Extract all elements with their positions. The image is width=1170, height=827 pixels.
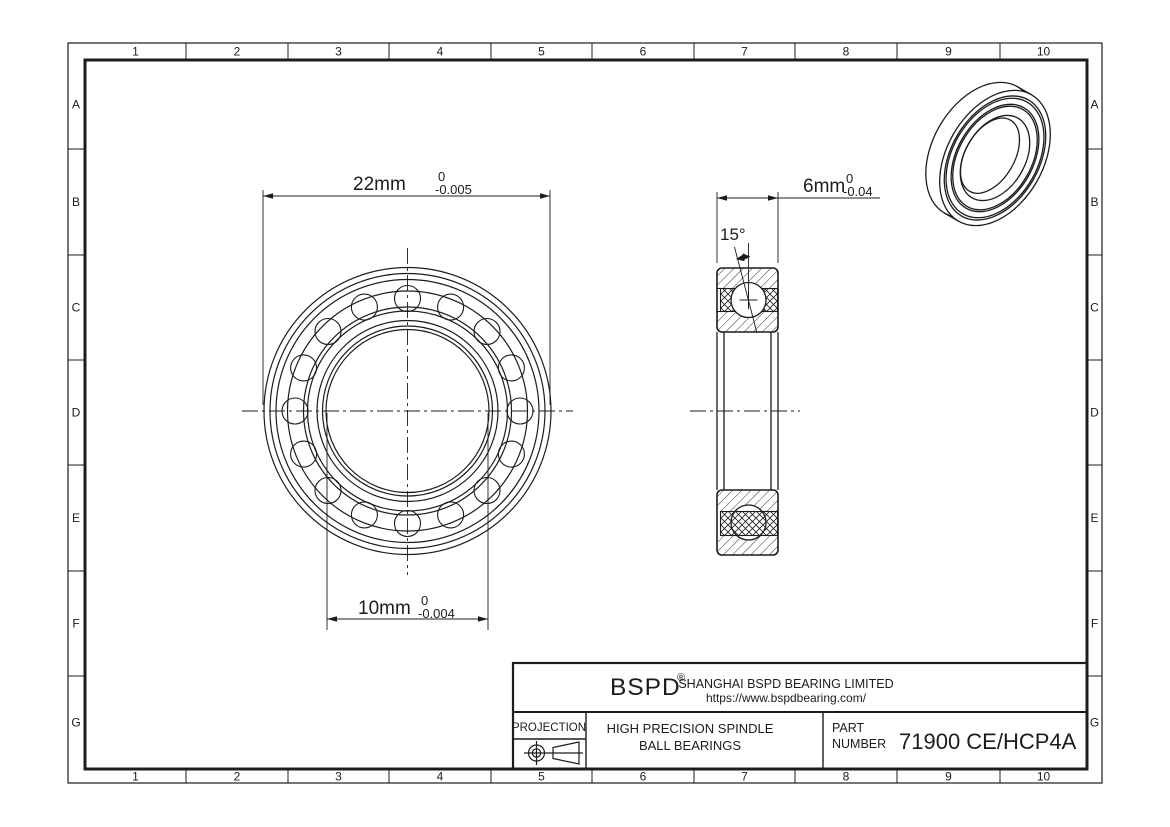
bearing-isometric-view bbox=[903, 63, 1073, 245]
engineering-drawing-sheet: 1122334455667788991010AABBCCDDEEFFGG 22m… bbox=[0, 0, 1170, 827]
grid-column-label-top: 6 bbox=[640, 45, 647, 59]
arrowhead-left bbox=[263, 193, 273, 199]
arrowhead-left bbox=[717, 195, 727, 201]
section-bottom-block bbox=[717, 490, 778, 556]
grid-column-label-bottom: 8 bbox=[843, 770, 850, 784]
grid-column-label-top: 9 bbox=[945, 45, 952, 59]
grid-column-label-bottom: 7 bbox=[741, 770, 748, 784]
ball bbox=[315, 478, 341, 504]
arrowhead-right bbox=[768, 195, 778, 201]
width-tol-lower: -0.04 bbox=[843, 184, 873, 199]
bearing-section-view bbox=[690, 192, 880, 556]
iso-front-face bbox=[917, 71, 1073, 245]
dimension-text-outer-diameter: 22mm 0 -0.005 bbox=[353, 169, 472, 197]
arrowhead-right bbox=[540, 193, 550, 199]
grid-row-label-right: G bbox=[1090, 716, 1099, 730]
od-value: 22mm bbox=[353, 174, 406, 195]
grid-column-label-top: 4 bbox=[437, 45, 444, 59]
grid-row-label-left: A bbox=[72, 98, 80, 112]
grid-column-label-bottom: 10 bbox=[1037, 770, 1051, 784]
company-website: https://www.bspdbearing.com/ bbox=[706, 691, 867, 705]
grid-column-label-top: 10 bbox=[1037, 45, 1051, 59]
grid-row-label-left: F bbox=[72, 617, 79, 631]
grid-column-label-top: 5 bbox=[538, 45, 545, 59]
part-number: 71900 CE/HCP4A bbox=[899, 729, 1077, 754]
dimension-outer-diameter bbox=[263, 190, 550, 405]
grid-column-label-top: 3 bbox=[335, 45, 342, 59]
grid-column-label-bottom: 2 bbox=[234, 770, 241, 784]
company-name: SHANGHAI BSPD BEARING LIMITED bbox=[678, 677, 893, 691]
grid-row-label-left: G bbox=[71, 716, 80, 730]
bore-value: 10mm bbox=[358, 598, 411, 619]
grid-row-label-left: D bbox=[72, 406, 81, 420]
product-title-line2: BALL BEARINGS bbox=[639, 738, 741, 753]
grid-row-label-right: D bbox=[1090, 406, 1099, 420]
grid-column-label-bottom: 3 bbox=[335, 770, 342, 784]
arrowhead-left bbox=[327, 616, 337, 622]
od-tol-lower: -0.005 bbox=[435, 182, 472, 197]
drawing-canvas: 1122334455667788991010AABBCCDDEEFFGG 22m… bbox=[0, 0, 1170, 827]
brand-logo: BSPD bbox=[610, 674, 681, 701]
grid-row-label-right: E bbox=[1090, 511, 1098, 525]
grid-row-label-left: C bbox=[72, 301, 81, 315]
section-top-block bbox=[717, 268, 778, 332]
grid-row-label-left: B bbox=[72, 195, 80, 209]
grid-column-label-bottom: 9 bbox=[945, 770, 952, 784]
grid-column-label-bottom: 5 bbox=[538, 770, 545, 784]
ball bbox=[474, 478, 500, 504]
grid-column-label-bottom: 6 bbox=[640, 770, 647, 784]
dimension-text-width: 6mm 0 -0.04 bbox=[803, 171, 873, 199]
width-value: 6mm bbox=[803, 176, 845, 197]
ball bbox=[474, 319, 500, 345]
bore-tol-lower: -0.004 bbox=[418, 606, 455, 621]
grid-column-label-top: 8 bbox=[843, 45, 850, 59]
grid-row-label-right: C bbox=[1090, 301, 1099, 315]
part-label-line1: PART bbox=[832, 721, 865, 735]
grid-row-label-right: B bbox=[1090, 195, 1098, 209]
grid-column-label-bottom: 4 bbox=[437, 770, 444, 784]
product-title-line1: HIGH PRECISION SPINDLE bbox=[607, 721, 774, 736]
grid-column-label-top: 1 bbox=[132, 45, 139, 59]
arrowhead-right bbox=[478, 616, 488, 622]
projection-symbol bbox=[524, 741, 583, 765]
bearing-front-view bbox=[242, 190, 573, 630]
grid-column-label-top: 2 bbox=[234, 45, 241, 59]
grid-column-label-top: 7 bbox=[741, 45, 748, 59]
seal-front bbox=[721, 512, 778, 536]
ball bbox=[315, 319, 341, 345]
contact-angle-label: 15° bbox=[720, 225, 746, 244]
dimension-text-bore-diameter: 10mm 0 -0.004 bbox=[358, 593, 455, 621]
part-label-line2: NUMBER bbox=[832, 737, 886, 751]
grid-row-label-left: E bbox=[72, 511, 80, 525]
grid-column-label-bottom: 1 bbox=[132, 770, 139, 784]
projection-label: PROJECTION bbox=[512, 722, 586, 734]
grid-row-label-right: F bbox=[1091, 617, 1098, 631]
grid-row-label-right: A bbox=[1090, 98, 1098, 112]
